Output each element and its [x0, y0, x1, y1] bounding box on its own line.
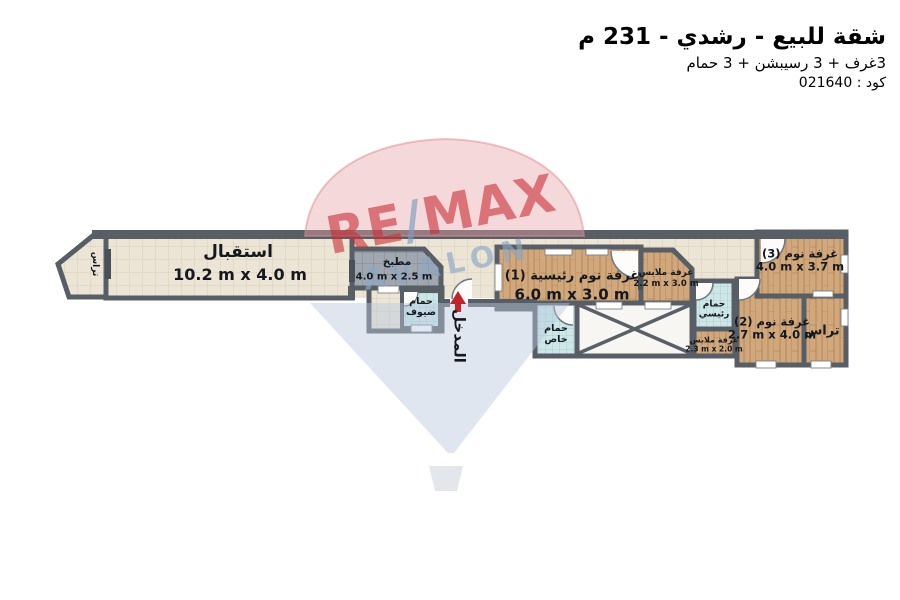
room-terrace-right: [804, 293, 846, 365]
wall-step: [348, 286, 355, 300]
listing-title: شقة للبيع - رشدي - 231 م: [286, 24, 886, 52]
balloon-envelope-bottom: [310, 303, 570, 453]
room-reception: [106, 234, 352, 298]
remax-balloon-watermark: RE/MAX AVALON: [305, 139, 584, 491]
room-dressing-2: [694, 329, 735, 356]
floorplan-page: RE/MAX AVALON شقة للبيع - رشدي - 231 م 3…: [0, 0, 900, 600]
listing-code: كود : 021640: [286, 75, 886, 91]
listing-header: شقة للبيع - رشدي - 231 م 3غرف + 3 رسيبشن…: [286, 24, 886, 91]
room-terrace-left: [58, 234, 109, 297]
room-dressing-1: [641, 250, 692, 309]
listing-subtitle: 3غرف + 3 رسيبشن + 3 حمام: [286, 54, 886, 72]
balloon-basket: [429, 466, 463, 491]
